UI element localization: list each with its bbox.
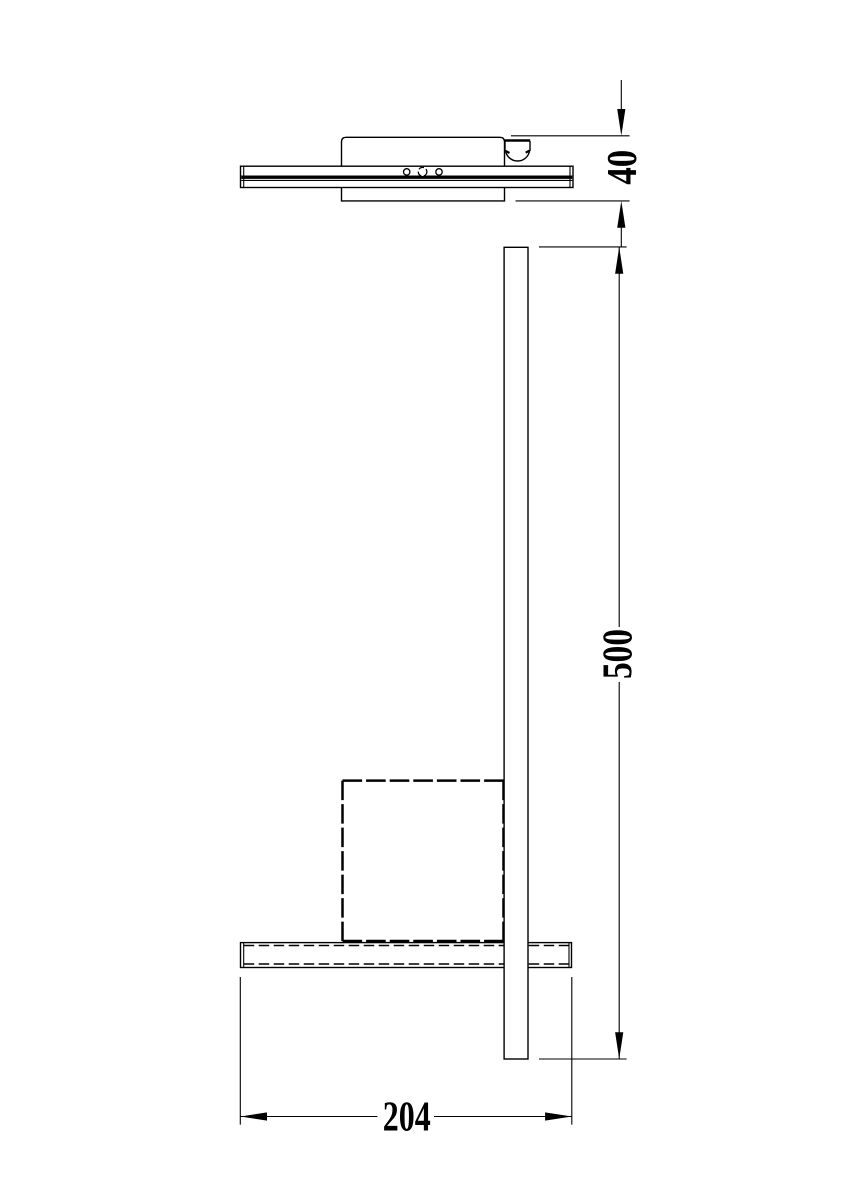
svg-text:500: 500 [595, 629, 641, 679]
svg-text:204: 204 [383, 1095, 431, 1141]
svg-text:40: 40 [600, 150, 646, 185]
